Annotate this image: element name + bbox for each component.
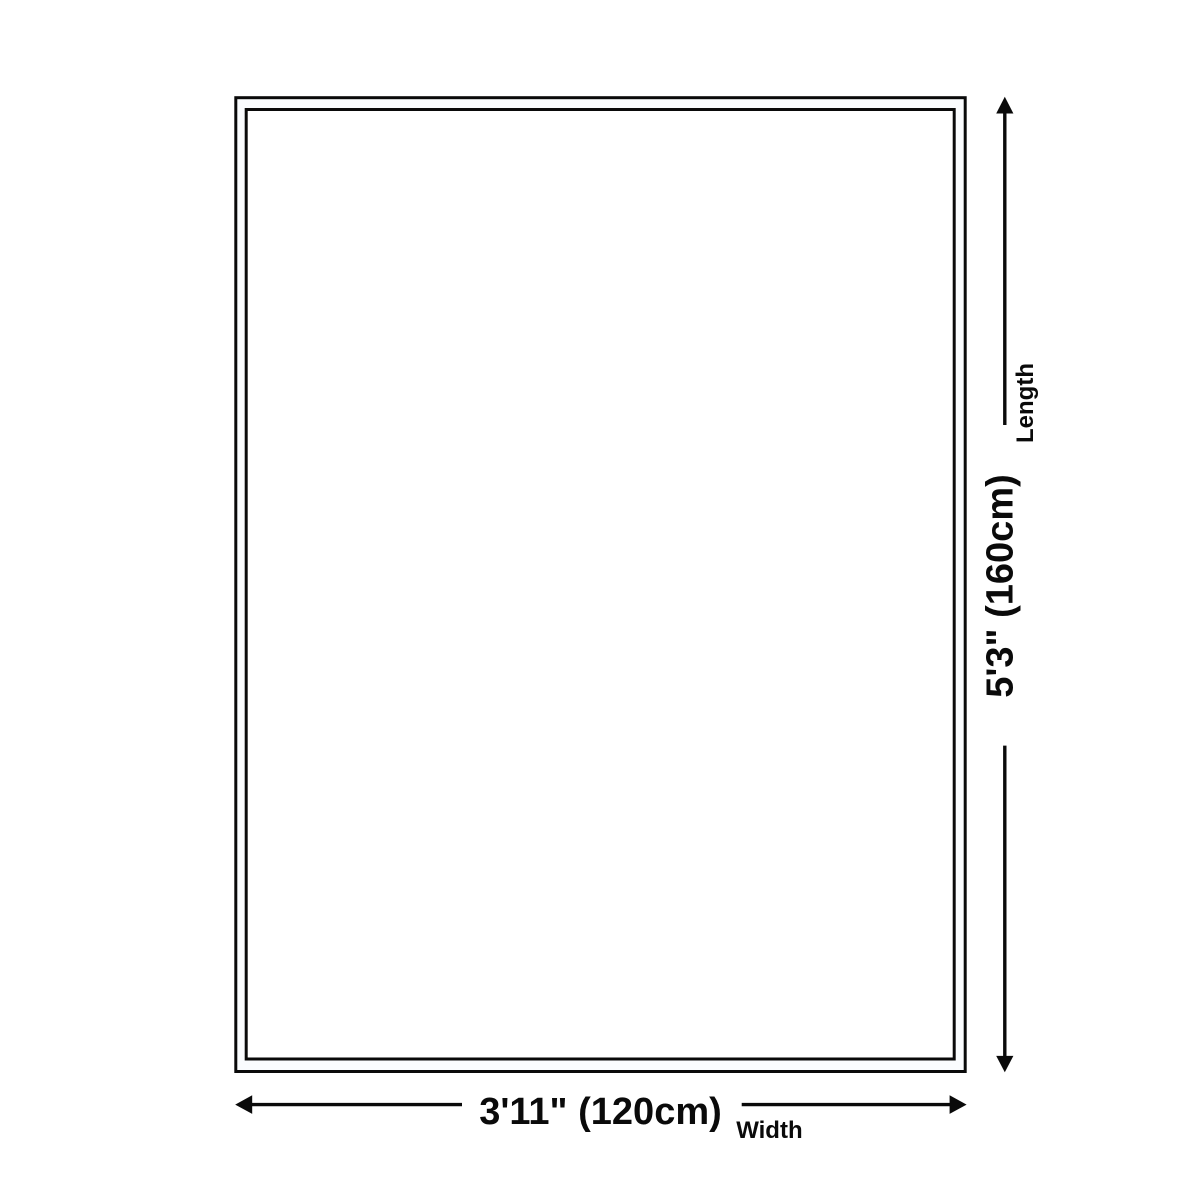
svg-text:5'3" (160cm): 5'3" (160cm) (980, 474, 1022, 698)
svg-text:Length: Length (1012, 363, 1039, 443)
svg-text:Width: Width (736, 1117, 802, 1144)
svg-text:3'11" (120cm): 3'11" (120cm) (479, 1091, 722, 1133)
